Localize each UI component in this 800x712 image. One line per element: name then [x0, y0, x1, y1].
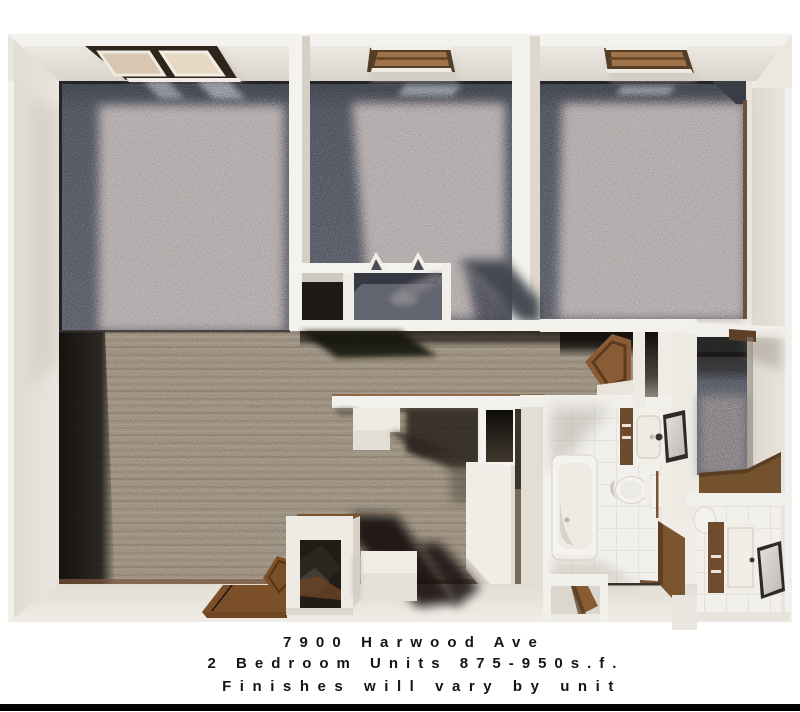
- svg-text:Finishes will vary by unit: Finishes will vary by unit: [222, 678, 622, 695]
- svg-text:7900 Harwood Ave: 7900 Harwood Ave: [283, 634, 545, 651]
- svg-text:2 Bedroom Units 875-950s.f.: 2 Bedroom Units 875-950s.f.: [208, 655, 625, 672]
